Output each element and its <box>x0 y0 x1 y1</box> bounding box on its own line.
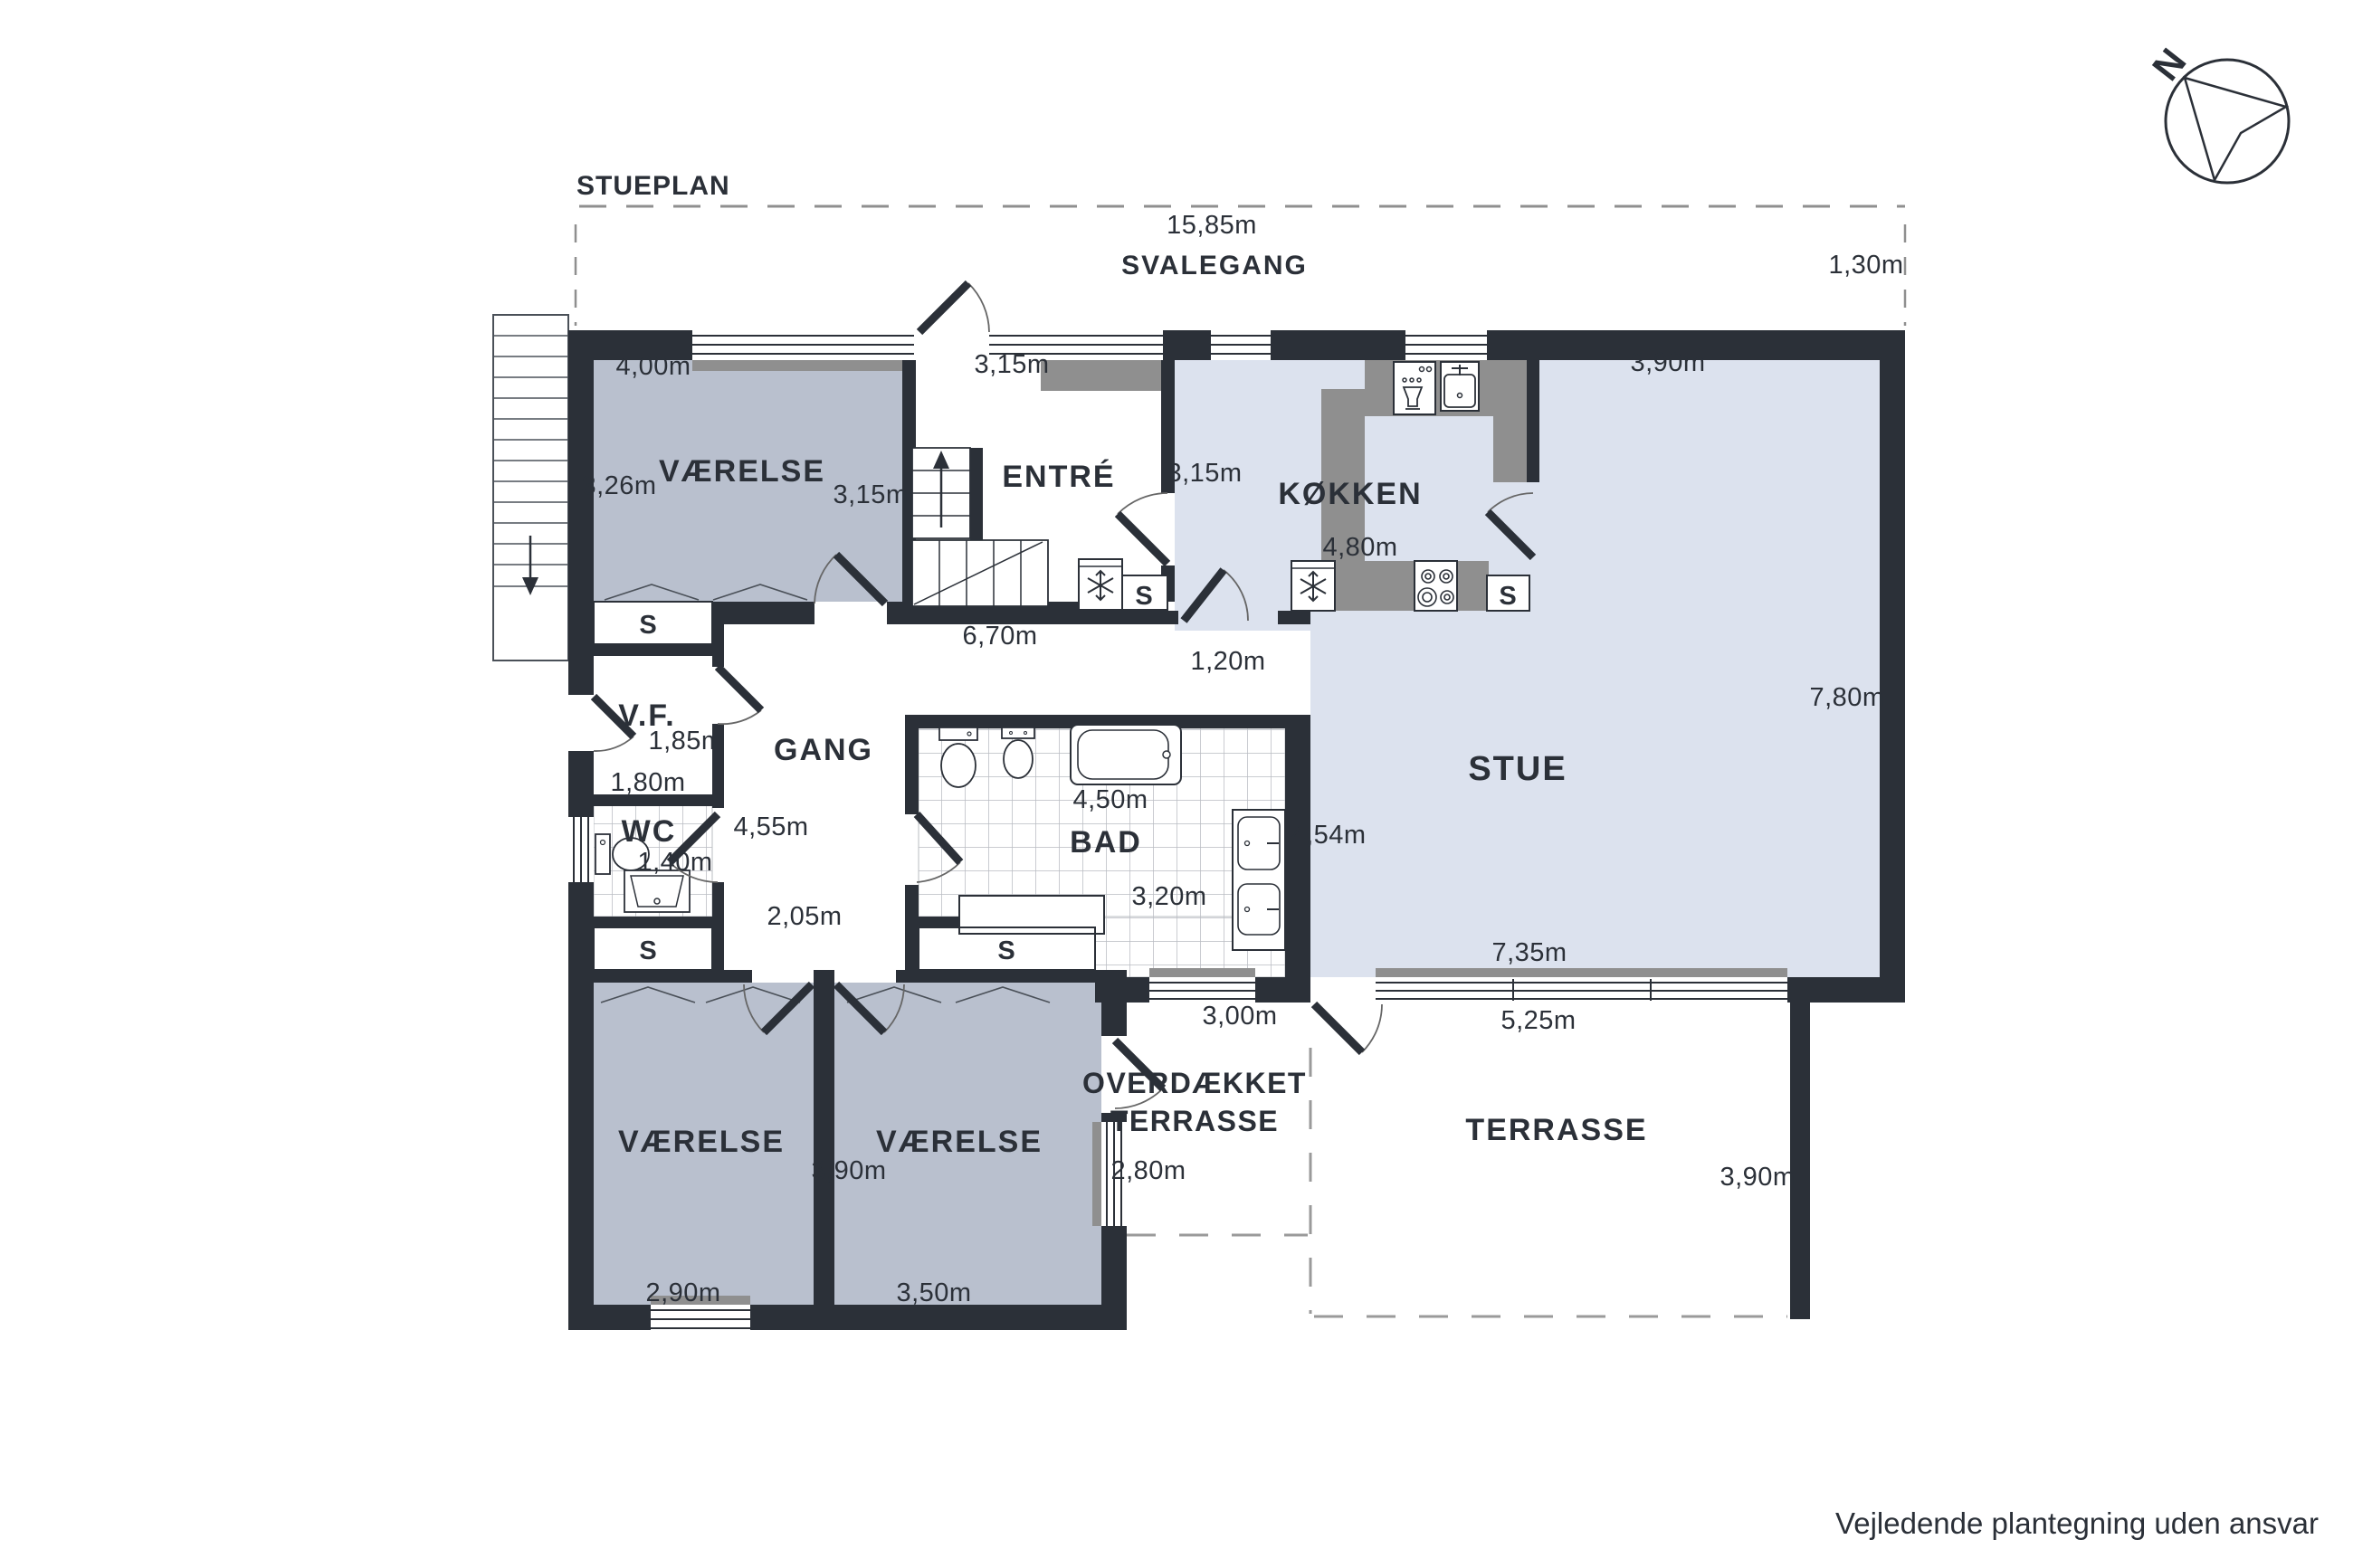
dim-vaerelse-nw-right: 3,15m <box>833 480 908 509</box>
closet-label-wc-south: S <box>639 936 656 965</box>
room-label-vaerelse-sw: VÆRELSE <box>618 1125 785 1159</box>
compass: N <box>2144 41 2289 183</box>
dim-bad-window: 3,00m <box>1202 1002 1277 1031</box>
dim-kitchen-counter: 4,80m <box>1322 533 1397 562</box>
exterior-stair <box>493 315 568 660</box>
svalegang-label: SVALEGANG <box>1121 251 1308 280</box>
dim-svalegang-length: 15,85m <box>1167 211 1257 240</box>
floor-plan-drawing: N STUEPLAN 15,85m SVALEGANG 1,30m VÆRELS… <box>0 0 2353 1568</box>
dim-svalegang-width: 1,30m <box>1828 251 1903 280</box>
dim-overdaekket: 2,80m <box>1110 1156 1186 1185</box>
dim-gang-mid: 4,55m <box>733 813 808 841</box>
dim-bad-top: 4,50m <box>1072 785 1148 814</box>
dim-vf-b: 1,80m <box>610 768 685 797</box>
dim-bad-right: 4,54m <box>1291 821 1366 850</box>
room-label-overdaekket-line1: OVERDÆKKET <box>1082 1067 1307 1099</box>
dim-kitchen-left: 3,15m <box>1167 459 1242 488</box>
closet-label-nw: S <box>639 611 656 640</box>
room-label-wc: WC <box>622 814 677 849</box>
room-label-koekken: KØKKEN <box>1278 477 1422 511</box>
disclaimer-text: Vejledende plantegning uden ansvar <box>1835 1506 2319 1540</box>
room-label-gang: GANG <box>774 733 873 767</box>
dim-vaerelse-s: 3,50m <box>896 1278 971 1307</box>
room-label-terrasse: TERRASSE <box>1465 1113 1647 1147</box>
bidet-icon <box>1002 727 1034 778</box>
plan-title: STUEPLAN <box>576 171 730 201</box>
dim-bad-mid: 3,20m <box>1131 882 1206 911</box>
closet-label-entre: S <box>1135 582 1152 611</box>
floor-plan-page: N STUEPLAN 15,85m SVALEGANG 1,30m VÆRELS… <box>0 0 2353 1568</box>
dim-stue-top: 3,90m <box>1630 348 1705 377</box>
dim-vf-a: 1,85m <box>648 727 723 755</box>
room-label-vaerelse-nw: VÆRELSE <box>659 454 825 489</box>
dim-stue-bottom: 7,35m <box>1491 938 1567 967</box>
room-label-bad: BAD <box>1070 825 1142 860</box>
dim-gang-bottom: 2,05m <box>767 902 842 931</box>
dim-vaerelse-sw: 2,90m <box>645 1278 720 1307</box>
room-label-entre: ENTRÉ <box>1002 460 1115 494</box>
dim-wc-width: 1,40m <box>637 848 712 877</box>
dim-vaerelse-mid: 3,90m <box>811 1156 886 1185</box>
dim-entre-top: 3,15m <box>974 350 1049 379</box>
dim-terrasse-right: 3,90m <box>1719 1163 1795 1192</box>
bathtub-icon <box>1071 725 1181 784</box>
dim-stue-right: 7,80m <box>1809 683 1884 712</box>
room-label-overdaekket-line2: TERRASSE <box>1110 1105 1279 1137</box>
closet-label-kitchen: S <box>1499 582 1516 611</box>
room-label-stue: STUE <box>1468 750 1567 788</box>
bad-toilet-icon <box>939 727 977 787</box>
dim-kitchen-pass: 1,20m <box>1190 647 1265 676</box>
dim-vaerelse-nw-left: 3,26m <box>581 471 656 500</box>
dim-gang-top: 6,70m <box>962 622 1037 651</box>
stair-outline <box>493 315 568 660</box>
room-label-vaerelse-s: VÆRELSE <box>876 1125 1043 1159</box>
closet-label-bad-south: S <box>997 936 1015 965</box>
dim-vaerelse-nw-top: 4,00m <box>615 352 691 381</box>
dim-stue-window: 5,25m <box>1500 1006 1576 1035</box>
